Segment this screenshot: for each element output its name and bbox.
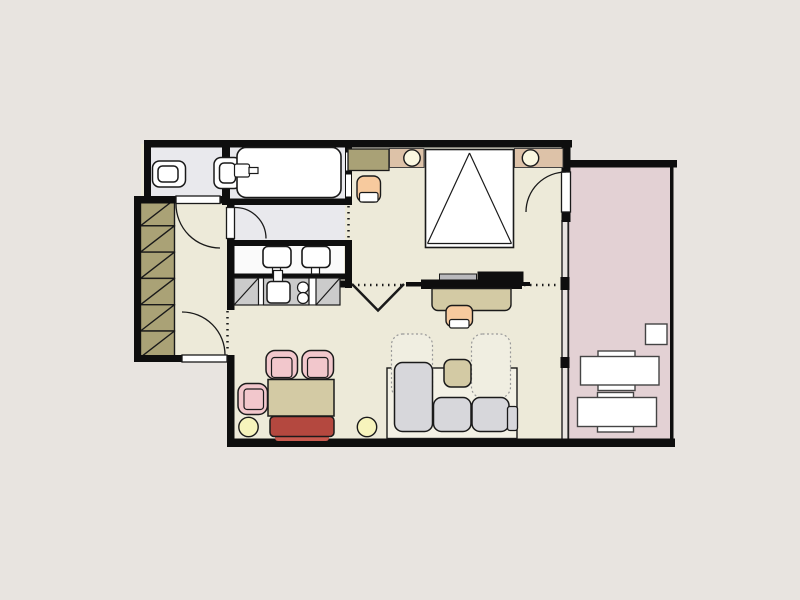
burner-2: [298, 293, 309, 304]
dining-chair-top-1: [266, 351, 298, 380]
sofa-seat-cushion-2: [472, 398, 509, 432]
wall-bedroom-right-chunk: [562, 212, 571, 222]
wall-hall-bottom: [134, 355, 182, 362]
wall-vanity-top: [227, 240, 352, 246]
counter-gap-right: [309, 279, 316, 304]
toilet-seat: [158, 166, 178, 182]
floor-plan-drawing: [0, 0, 800, 600]
wall-hall-left: [134, 196, 141, 362]
tv-bar-tail-right: [521, 282, 530, 286]
wall-balcony-top: [565, 160, 677, 168]
corridor-door-leaf: [227, 208, 235, 239]
floor-lamp-left: [239, 417, 258, 436]
floor-plan-canvas: [0, 0, 800, 600]
corridor-floor: [234, 204, 345, 242]
vanity-sink-left: [263, 247, 291, 268]
dining-chair-left: [238, 384, 268, 415]
bedside-lamp-left: [404, 150, 420, 166]
wall-balcony-right: [670, 166, 674, 442]
bed-mattress: [426, 150, 514, 248]
burner-1: [298, 282, 309, 293]
vanity-sink-right: [302, 247, 330, 268]
wall-wc-left: [144, 140, 151, 202]
bedside-lamp-right: [522, 150, 538, 166]
sofa-chaise-cushion: [395, 363, 433, 432]
wall-step-vertical: [227, 355, 235, 445]
side-table: [444, 360, 471, 388]
bathtub-faucet-spout: [249, 168, 258, 174]
bathtub-faucet: [235, 164, 250, 177]
floor-lamp-right: [357, 417, 376, 436]
wall-wc-bottom-left: [144, 196, 177, 204]
balcony-table-2: [578, 398, 657, 427]
wc-door-leaf: [176, 196, 220, 204]
sofa-bed-extension-right: [472, 334, 511, 398]
balcony-small-table: [646, 324, 668, 345]
sofa-seat-cushion-1: [434, 398, 472, 432]
window-mullion-upper: [561, 277, 570, 290]
dresser: [348, 149, 389, 171]
bedroom-armchair-footrest: [360, 193, 379, 203]
dining-table: [268, 380, 334, 417]
sofa-armrest-right: [508, 407, 518, 431]
tv-screen-bar: [421, 280, 522, 290]
red-bench: [270, 417, 334, 437]
counter-gap-left: [259, 279, 264, 304]
double-bed: [426, 150, 514, 248]
desk-chair-seat: [450, 320, 470, 329]
entry-door-leaf: [182, 355, 227, 362]
tv-bar-tail-left: [406, 282, 421, 287]
wall-top: [144, 140, 572, 148]
window-mullion-lower: [561, 357, 570, 368]
balcony-door-leaf: [562, 172, 571, 212]
kitchen-sink: [267, 282, 290, 304]
wall-bath-bottom: [222, 199, 352, 206]
dining-chair-top-2: [302, 351, 334, 380]
balcony-table-1: [581, 357, 660, 386]
wall-toilet-seat: [220, 163, 236, 183]
wardrobe: [141, 200, 175, 358]
